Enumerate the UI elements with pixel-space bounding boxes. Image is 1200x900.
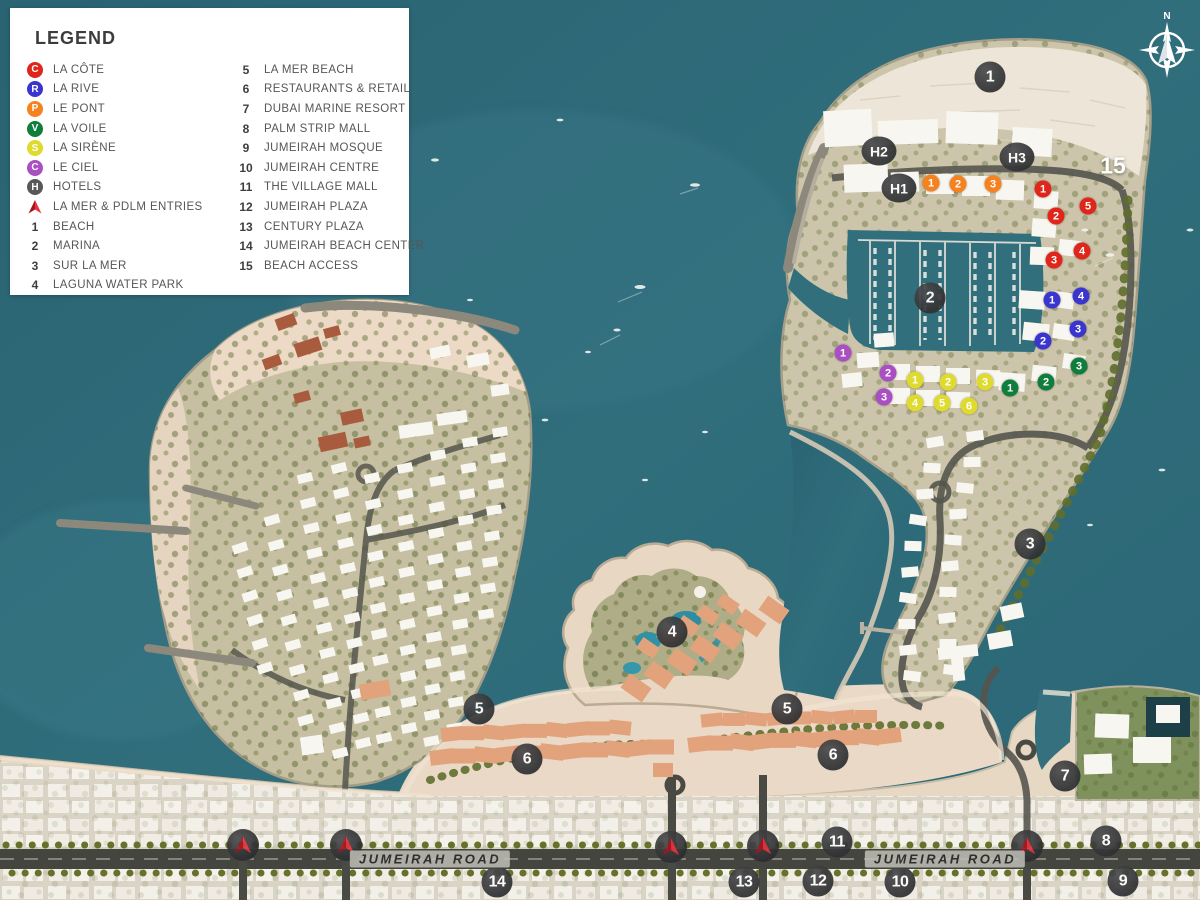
legend-number: 9	[238, 141, 254, 155]
compass-icon: N	[1138, 8, 1196, 82]
legend-panel: LEGEND CLA CÔTERLA RIVEPLE PONTVLA VOILE…	[10, 8, 409, 295]
legend-number: 8	[238, 122, 254, 136]
legend-number: 5	[238, 63, 254, 77]
legend-number: 15	[238, 259, 254, 273]
legend-number: 7	[238, 102, 254, 116]
legend-number: 11	[238, 180, 254, 194]
legend-item-century-plaza: 13CENTURY PLAZA	[238, 217, 406, 237]
legend-item-hotels: HHOTELS	[27, 178, 237, 198]
legend-item-la-voile: VLA VOILE	[27, 119, 237, 139]
legend-item-jumeirah-mosque: 9JUMEIRAH MOSQUE	[238, 138, 406, 158]
legend-item-dubai-marine-resort: 7DUBAI MARINE RESORT	[238, 99, 406, 119]
entry-arrow-icon	[27, 199, 43, 215]
legend-number: 1	[27, 220, 43, 234]
district-badge: H	[27, 179, 43, 195]
legend-number: 14	[238, 239, 254, 253]
district-badge: C	[27, 160, 43, 176]
legend-item-la-sir-ne: SLA SIRÈNE	[27, 138, 237, 158]
legend-item-jumeirah-centre: 10JUMEIRAH CENTRE	[238, 158, 406, 178]
legend-item-jumeirah-plaza: 12JUMEIRAH PLAZA	[238, 197, 406, 217]
district-badge: P	[27, 101, 43, 117]
legend-title: LEGEND	[35, 28, 116, 49]
legend-item-entries: LA MER & PDLM ENTRIES	[27, 197, 237, 217]
legend-number: 13	[238, 220, 254, 234]
legend-item-le-pont: PLE PONT	[27, 99, 237, 119]
district-badge: V	[27, 121, 43, 137]
legend-column-2: 5LA MER BEACH6RESTAURANTS & RETAIL7DUBAI…	[238, 60, 406, 276]
legend-item-la-mer-beach: 5LA MER BEACH	[238, 60, 406, 80]
legend-item-marina: 2MARINA	[27, 236, 237, 256]
legend-item-laguna-water-park: 4LAGUNA WATER PARK	[27, 276, 237, 296]
legend-item-the-village-mall: 11THE VILLAGE MALL	[238, 178, 406, 198]
svg-text:N: N	[1163, 11, 1170, 22]
district-badge: R	[27, 81, 43, 97]
district-badge: C	[27, 62, 43, 78]
legend-item-jumeirah-beach-center: 14JUMEIRAH BEACH CENTER	[238, 236, 406, 256]
legend-item-restaurants-retail: 6RESTAURANTS & RETAIL	[238, 80, 406, 100]
legend-item-beach: 1BEACH	[27, 217, 237, 237]
legend-number: 10	[238, 161, 254, 175]
district-badge: S	[27, 140, 43, 156]
legend-item-la-c-te: CLA CÔTE	[27, 60, 237, 80]
legend-column-1: CLA CÔTERLA RIVEPLE PONTVLA VOILESLA SIR…	[27, 60, 237, 295]
legend-item-palm-strip-mall: 8PALM STRIP MALL	[238, 119, 406, 139]
legend-item-le-ciel: CLE CIEL	[27, 158, 237, 178]
site-map: 12345566789101112131415H1H2H312345123412…	[0, 0, 1200, 900]
legend-number: 2	[27, 239, 43, 253]
legend-number: 12	[238, 200, 254, 214]
legend-item-la-rive: RLA RIVE	[27, 80, 237, 100]
legend-number: 4	[27, 278, 43, 292]
legend-number: 3	[27, 259, 43, 273]
legend-item-beach-access: 15BEACH ACCESS	[238, 256, 406, 276]
legend-number: 6	[238, 82, 254, 96]
legend-item-sur-la-mer: 3SUR LA MER	[27, 256, 237, 276]
